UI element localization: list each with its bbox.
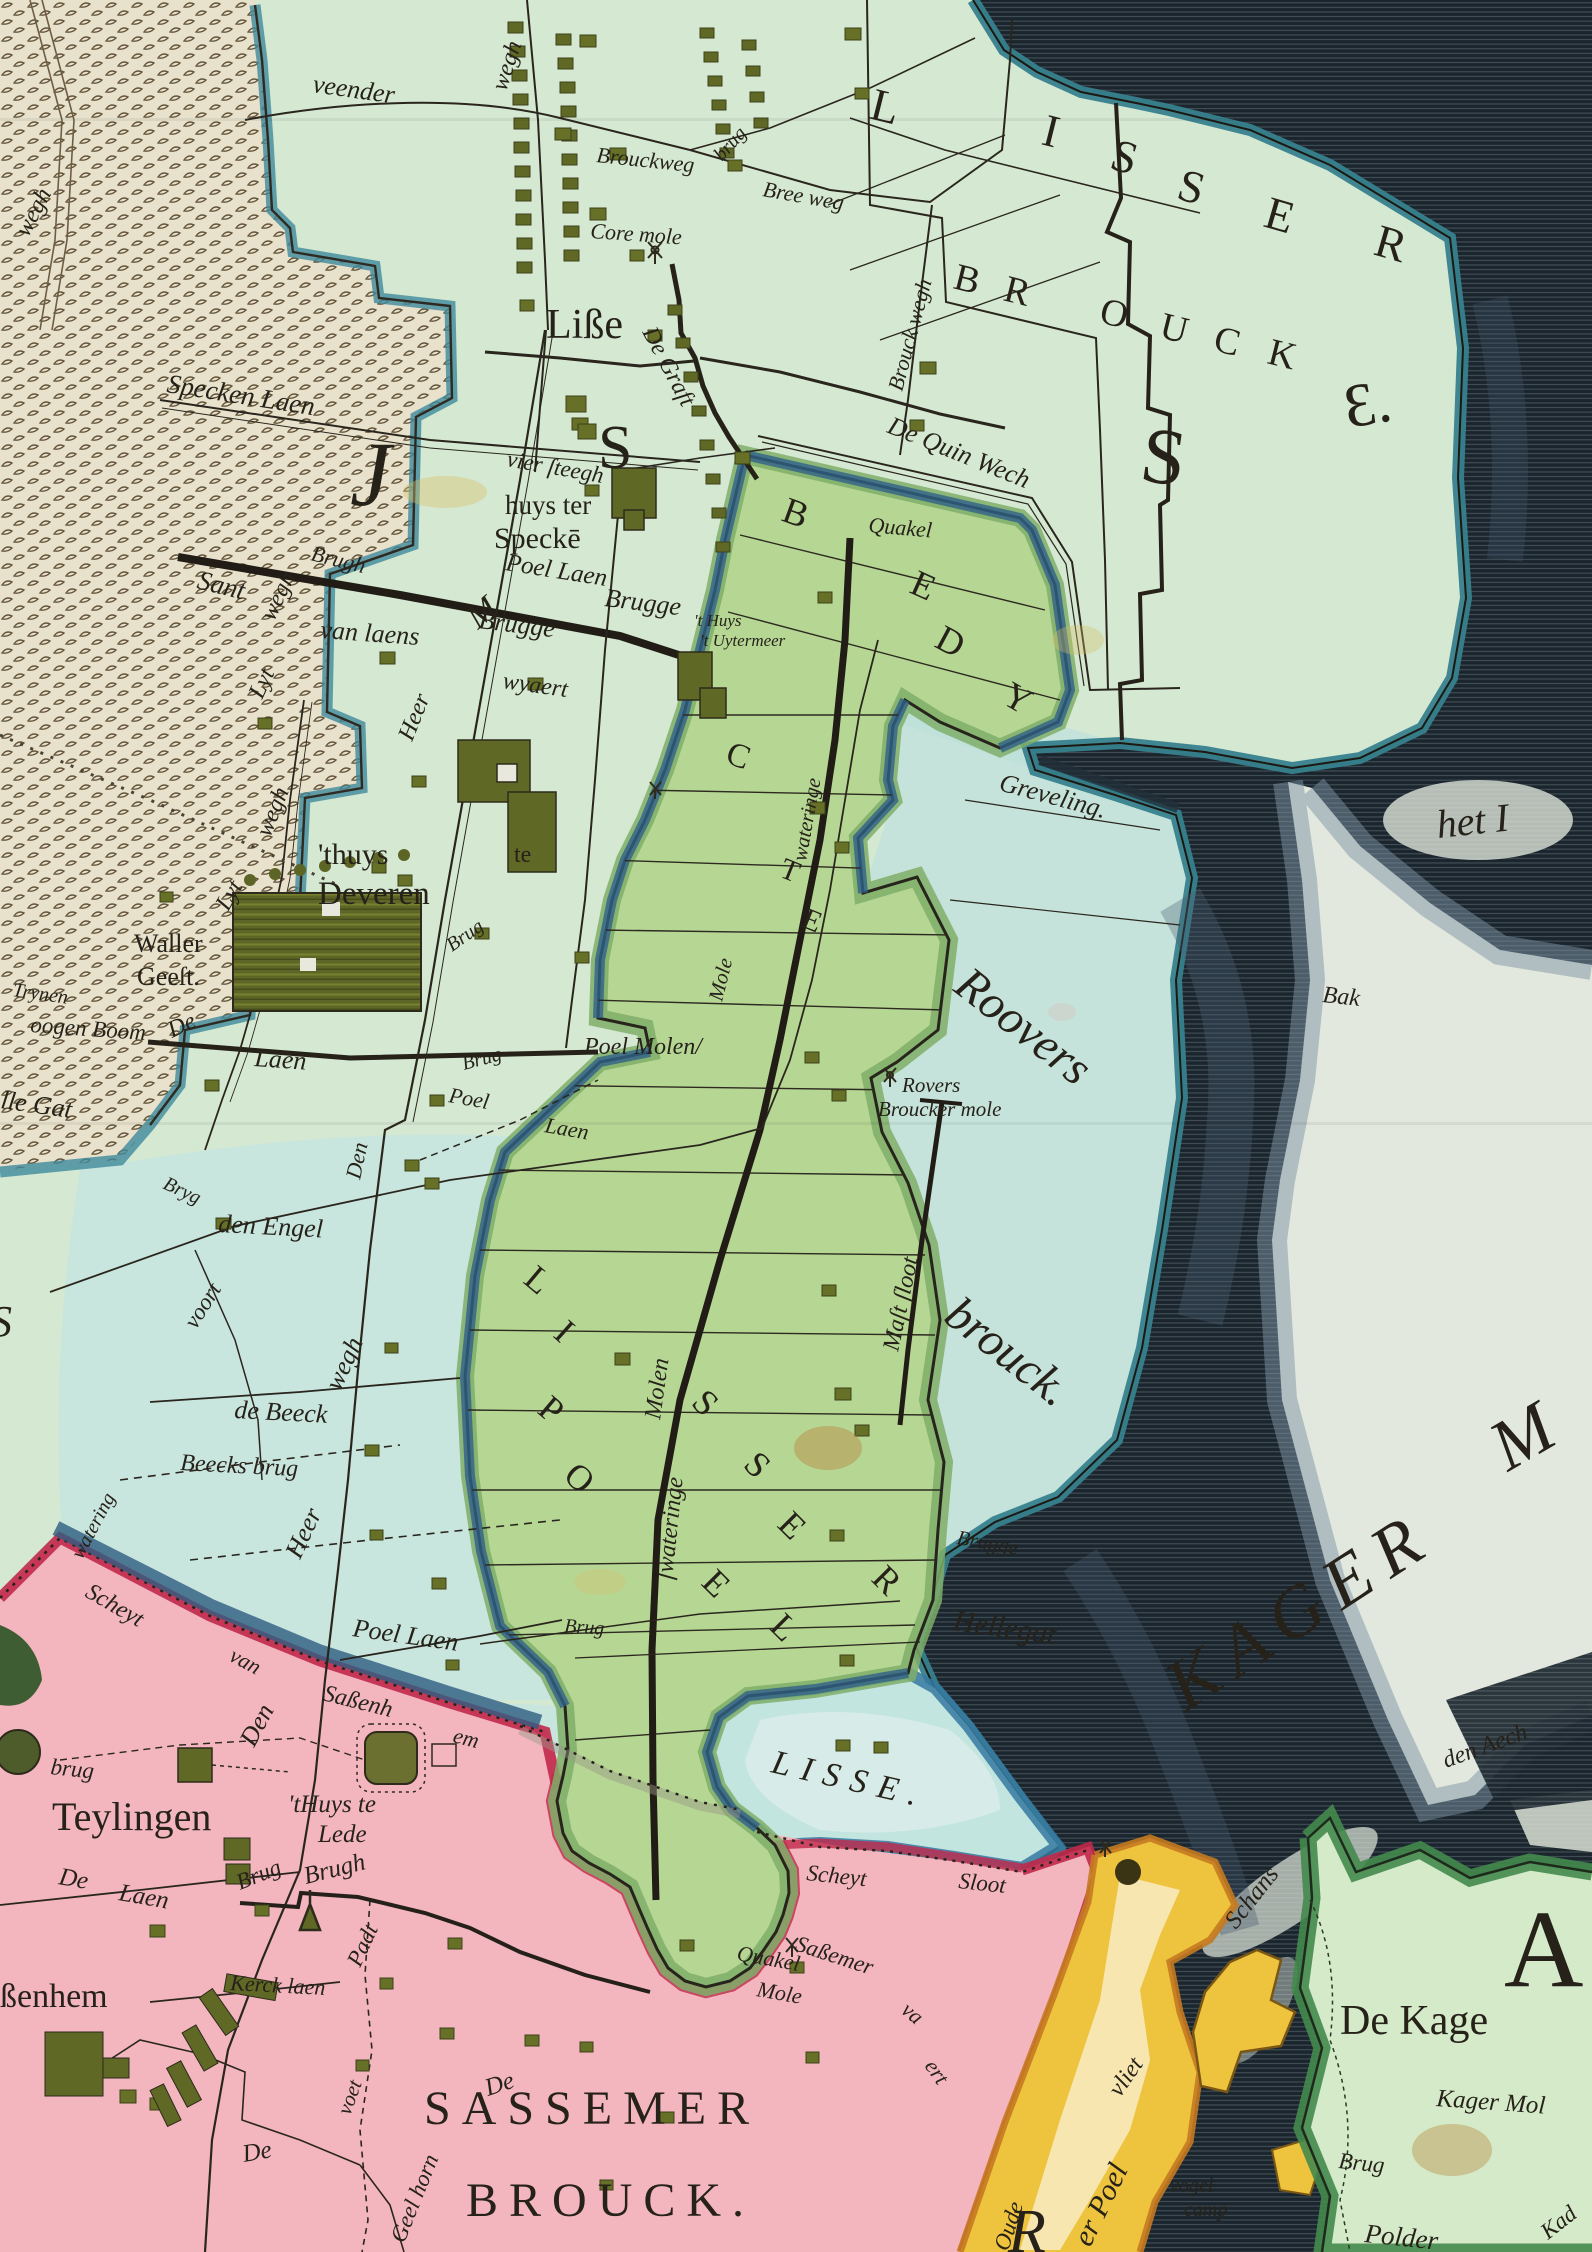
svg-text:huys ter: huys ter — [505, 490, 591, 520]
svg-text:brug: brug — [49, 1754, 95, 1783]
svg-text:Geeſt.: Geeſt. — [137, 962, 200, 991]
svg-text:Speckē: Speckē — [494, 522, 581, 555]
svg-text:S: S — [0, 1297, 12, 1346]
svg-text:'t Huys: 't Huys — [694, 611, 742, 630]
svg-text:Laen: Laen — [253, 1043, 308, 1076]
svg-text:te: te — [514, 842, 531, 868]
svg-text:'thuys: 'thuys — [318, 838, 388, 871]
svg-text:Deveren: Deveren — [318, 876, 430, 912]
svg-text:Waller: Waller — [134, 929, 203, 958]
svg-text:J: J — [350, 423, 395, 525]
svg-text:Brug: Brug — [1337, 2148, 1385, 2178]
svg-text:De: De — [56, 1863, 90, 1895]
svg-text:A: A — [1504, 1888, 1583, 2010]
svg-text:Lede: Lede — [317, 1821, 367, 1848]
svg-text:camp: camp — [1184, 2199, 1227, 2221]
svg-text:'tHuys te: 'tHuys te — [288, 1791, 376, 1818]
svg-text:R: R — [1007, 2198, 1046, 2252]
svg-text:het I: het I — [1434, 794, 1512, 846]
svg-text:den Engel: den Engel — [218, 1209, 324, 1243]
svg-text:Rovers: Rovers — [901, 1073, 960, 1097]
svg-text:BROUCK.: BROUCK. — [466, 2174, 755, 2227]
svg-text:vogel: vogel — [1170, 2175, 1214, 2197]
svg-text:SASSEMER: SASSEMER — [424, 2082, 760, 2135]
svg-text:De Kage: De Kage — [1340, 1998, 1488, 2044]
svg-text:ßenhem: ßenhem — [0, 1978, 108, 2015]
svg-text:Poel Molen/: Poel Molen/ — [583, 1034, 704, 1060]
svg-text:Teylingen: Teylingen — [52, 1794, 211, 1839]
svg-text:Liße: Liße — [546, 302, 623, 348]
svg-text:'t Uytermeer: 't Uytermeer — [700, 631, 786, 650]
svg-text:Brug: Brug — [564, 1615, 605, 1640]
svg-text:Bak: Bak — [1321, 982, 1361, 1012]
svg-text:De: De — [239, 2136, 273, 2168]
svg-text:Sloot: Sloot — [957, 1868, 1007, 1898]
svg-text:Kerck laen: Kerck laen — [229, 1970, 326, 2000]
svg-text:de Beeck: de Beeck — [234, 1395, 329, 1429]
svg-text:Broucker mole: Broucker mole — [878, 1097, 1001, 1121]
